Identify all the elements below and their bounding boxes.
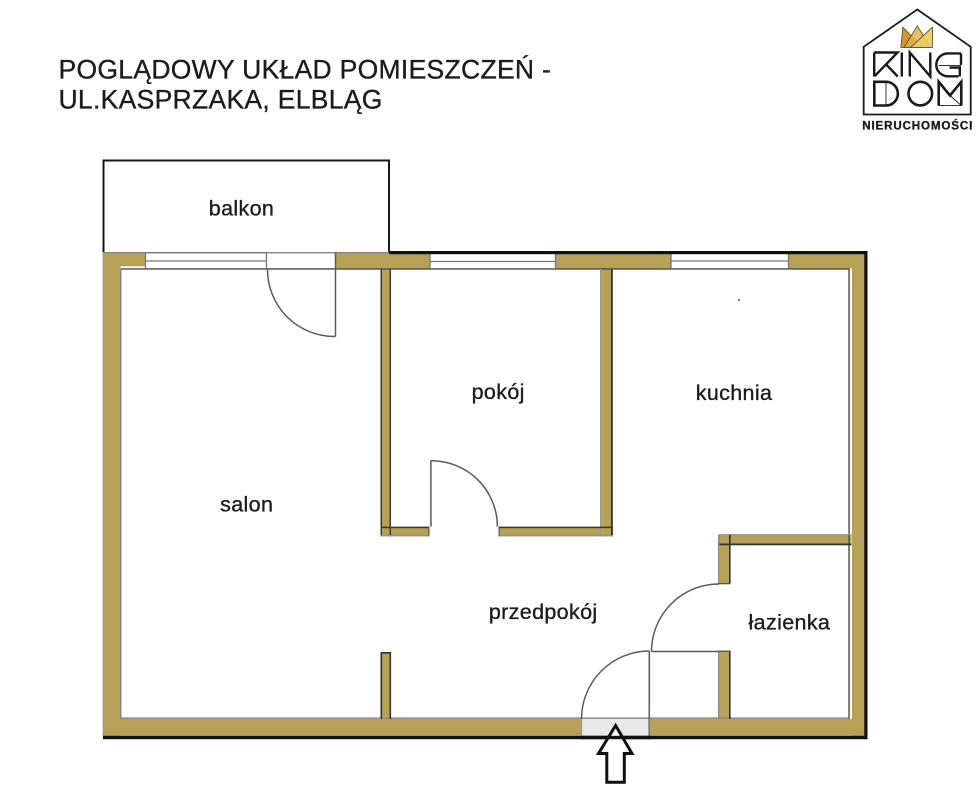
svg-text:łazienka: łazienka (749, 611, 831, 635)
svg-text:balkon: balkon (209, 197, 274, 221)
svg-text:pokój: pokój (472, 380, 525, 404)
svg-text:UL.KASPRZAKA, ELBLĄG: UL.KASPRZAKA, ELBLĄG (59, 84, 383, 114)
svg-text:salon: salon (220, 493, 273, 517)
svg-text:przedpokój: przedpokój (489, 600, 598, 624)
svg-text:POGLĄDOWY UKŁAD POMIESZCZEŃ -: POGLĄDOWY UKŁAD POMIESZCZEŃ - (59, 54, 552, 84)
svg-text:NIERUCHOMOŚCI: NIERUCHOMOŚCI (862, 119, 973, 132)
svg-text:kuchnia: kuchnia (696, 381, 773, 405)
